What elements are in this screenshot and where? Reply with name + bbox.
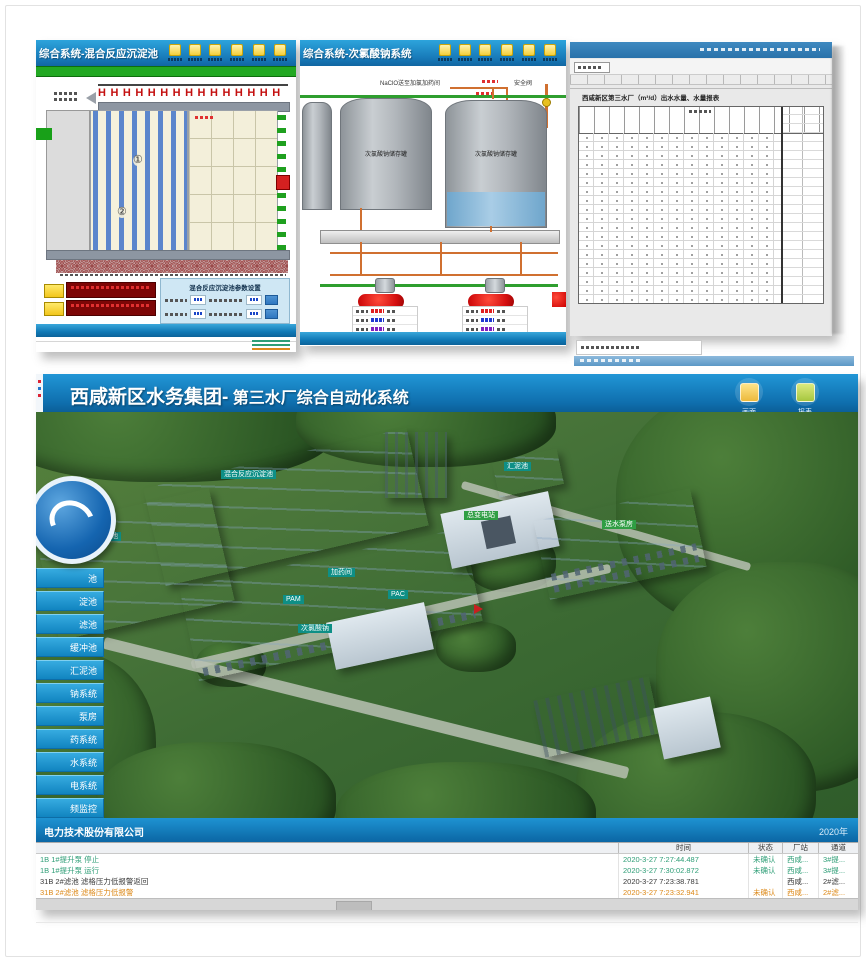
substation-door <box>481 516 516 550</box>
bottom-channel-bar <box>46 250 290 260</box>
nav-button-caption <box>500 58 514 61</box>
report-summary-columns <box>781 107 823 303</box>
nav-button-caption <box>458 58 472 61</box>
event-channel: 2#滤... <box>818 876 858 887</box>
nav-button-icon <box>209 44 221 56</box>
sidebar-item-label: 汇泥池 <box>70 664 97 677</box>
report-shadow <box>832 46 845 334</box>
pipe-vertical <box>440 242 442 276</box>
column-ruler <box>570 75 832 85</box>
horizontal-scrollbar[interactable] <box>36 898 858 910</box>
sidebar-item-label: 缓冲池 <box>70 641 97 654</box>
nav-button-caption <box>522 58 536 61</box>
event-row[interactable]: 31B 2#滤池 滤格压力低报警 2020-3-27 7:23:32.941 未… <box>36 887 858 898</box>
screen-a-titlebar: 综合系统-混合反应沉淀池 <box>36 40 296 66</box>
nav-button-caption <box>208 58 222 61</box>
main-titlebar: 西咸新区水务集团- 第三水厂综合自动化系统 画面 报表 <box>36 374 858 412</box>
param-label-greeked <box>165 313 187 316</box>
param-label-greeked <box>209 313 243 316</box>
nav-button-icon <box>544 44 556 56</box>
flag-icon <box>474 604 488 614</box>
sidebar-item-9[interactable]: 水系统 <box>36 752 104 772</box>
sidebar-item-7[interactable]: 泵房 <box>36 706 104 726</box>
sidebar-item-8[interactable]: 药系统 <box>36 729 104 749</box>
green-gate-indicator <box>36 128 52 140</box>
screen-a-title: 综合系统-混合反应沉淀池 <box>39 46 158 61</box>
report-title: 西咸新区第三水厂（m³/d）出水水量、水量报表 <box>582 92 719 102</box>
event-message: 31B 2#滤池 滤格压力低报警 <box>36 887 618 898</box>
dosing-pump-3-partial <box>552 292 566 307</box>
event-col-channel: 通道 <box>818 843 858 853</box>
param-value-field[interactable] <box>190 309 206 319</box>
param-set-button[interactable] <box>265 309 278 319</box>
building-label-mixing-basin: 混合反应沉淀池 <box>221 470 276 479</box>
event-status: 未确认 <box>748 865 782 876</box>
sidebar-item-11[interactable]: 频监控 <box>36 798 104 818</box>
event-col-station: 厂站 <box>782 843 818 853</box>
nav-screen-button[interactable] <box>476 44 494 64</box>
settling-cell-grid <box>188 110 278 252</box>
event-col-time: 时间 <box>618 843 748 853</box>
footer-company: 电力技术股份有限公司 <box>44 824 144 839</box>
tank2-label: 次氯酸钠储存罐 <box>446 149 546 158</box>
event-line-greeked <box>252 340 290 342</box>
composite-screenshot: 综合系统-混合反应沉淀池 HHHHHHHHHHHHHHH ① ② <box>0 0 866 962</box>
pump-motor <box>485 278 505 293</box>
screen-b-title: 综合系统-次氯酸钠系统 <box>303 46 412 61</box>
left-tank <box>46 110 90 252</box>
alarm-cell <box>276 175 290 190</box>
event-station: 西咸... <box>782 854 818 865</box>
sidebar-item-label: 药系统 <box>70 733 97 746</box>
pump2-readouts <box>462 306 528 334</box>
event-time: 2020-3-27 7:23:32.941 <box>618 887 748 898</box>
pipe-vertical <box>360 242 362 276</box>
sidebar-item-4[interactable]: 缓冲池 <box>36 637 104 657</box>
green-dosing-line <box>320 284 558 287</box>
drain-valve-row[interactable] <box>56 260 288 273</box>
mode-button-2[interactable] <box>44 302 64 316</box>
sidebar-item-label: 电系统 <box>70 779 97 792</box>
event-row[interactable]: 1B 1#提升泵 停止 2020-3-27 7:27:44.487 未确认 西咸… <box>36 854 858 865</box>
button-ring <box>735 378 763 406</box>
nav-button-caption <box>230 58 244 61</box>
screen-mixing-sedimentation: 综合系统-混合反应沉淀池 HHHHHHHHHHHHHHH ① ② <box>36 40 296 352</box>
param-value-field[interactable] <box>246 309 262 319</box>
report-toolbar <box>570 59 832 75</box>
main-title-company: 西咸新区水务集团- <box>70 387 228 408</box>
screen-report: 西咸新区第三水厂（m³/d）出水水量、水量报表 <box>570 42 832 336</box>
event-channel: 3#提... <box>818 854 858 865</box>
screen-b-titlebar: 综合系统-次氯酸钠系统 <box>300 40 566 66</box>
page-bottom-line <box>36 922 858 923</box>
report-table-body <box>579 133 783 303</box>
pipe-horizontal <box>330 252 558 254</box>
safety-valve-label: 安全阀 <box>514 78 532 87</box>
sidebar-item-label: 池 <box>88 572 97 585</box>
sidebar-item-2[interactable]: 淀池 <box>36 591 104 611</box>
param-label-greeked <box>209 299 243 302</box>
sidebar-item-label: 淀池 <box>79 595 97 608</box>
sidebar-item-label: 钠系统 <box>70 687 97 700</box>
event-list-header: 时间 状态 厂站 通道 <box>36 843 858 854</box>
nav-screen-button[interactable] <box>250 44 268 64</box>
building-label-pump-house: 送水泵房 <box>602 520 636 529</box>
nav-button-icon <box>459 44 471 56</box>
storage-tank-1: 次氯酸钠储存罐 <box>340 98 432 210</box>
report-bottom-bar <box>574 356 854 366</box>
event-list: 时间 状态 厂站 通道 1B 1#提升泵 停止 2020-3-27 7:27:4… <box>36 842 858 899</box>
event-station: 西咸... <box>782 876 818 887</box>
alarm-banner-1 <box>66 282 156 298</box>
report-table <box>578 106 824 304</box>
button-ring <box>791 378 819 406</box>
event-message: 31B 2#滤池 滤格压力低报警返回 <box>36 876 618 887</box>
tank2-liquid-level <box>447 192 545 226</box>
nav-button-icon <box>253 44 265 56</box>
green-divider-band <box>36 66 296 77</box>
event-time: 2020-3-27 7:23:38.781 <box>618 876 748 887</box>
screen-a-taskbar[interactable] <box>36 324 296 337</box>
pipe-vertical <box>520 242 522 276</box>
forest-blob <box>336 762 596 818</box>
nav-button-icon <box>439 44 451 56</box>
inlet-label-greeked <box>54 98 78 101</box>
report-footer-box <box>576 340 702 355</box>
titlebar-edge-strip <box>36 374 43 412</box>
basin-number-2: ② <box>117 207 127 218</box>
report-menu-greeked <box>700 48 820 51</box>
tank1-label: 次氯酸钠储存罐 <box>341 149 431 158</box>
parameter-panel: 混合反应沉淀池参数设置 <box>160 278 290 324</box>
building-label-dosing-room: 加药间 <box>328 568 355 577</box>
building-label-pam: PAM <box>283 595 304 604</box>
nav-button-caption <box>252 58 266 61</box>
nav-screen-button[interactable] <box>186 44 204 64</box>
green-supply-line <box>300 95 566 98</box>
event-status: 未确认 <box>748 854 782 865</box>
nav-button-caption <box>273 58 287 61</box>
event-message: 1B 1#提升泵 运行 <box>36 865 618 876</box>
nav-button-icon <box>501 44 513 56</box>
param-set-button[interactable] <box>265 295 278 305</box>
event-station: 西咸... <box>782 865 818 876</box>
safety-valve-icon <box>542 98 551 107</box>
mode-button-1[interactable] <box>44 284 64 298</box>
pipe-vertical <box>492 87 494 99</box>
screen-plant-overview: 西咸新区水务集团- 第三水厂综合自动化系统 画面 报表 <box>36 374 858 910</box>
alarm-text-greeked <box>71 286 151 289</box>
nav-screen-button[interactable] <box>436 44 454 64</box>
nav-screen-button[interactable] <box>206 44 224 64</box>
sidebar-item-3[interactable]: 滤池 <box>36 614 104 634</box>
pipe-horizontal <box>450 87 508 89</box>
pipe-vertical <box>360 208 362 230</box>
event-station: 西咸... <box>782 887 818 898</box>
sidebar-item-label: 水系统 <box>70 756 97 769</box>
main-title-system: 第三水厂综合自动化系统 <box>228 390 408 407</box>
pump-motor <box>375 278 395 293</box>
tank-partial <box>302 102 332 210</box>
nav-screen-button[interactable] <box>271 44 289 64</box>
event-message: 1B 1#提升泵 停止 <box>36 854 618 865</box>
sidebar-item-label: 频监控 <box>70 802 97 815</box>
event-row[interactable]: 1B 1#提升泵 运行 2020-3-27 7:30:02.872 未确认 西咸… <box>36 865 858 876</box>
nav-button-icon <box>274 44 286 56</box>
nav-screen-button[interactable] <box>456 44 474 64</box>
sedimentation-basin: ① ② <box>90 110 188 252</box>
nav-button-caption <box>168 58 182 61</box>
nav-screen-button[interactable] <box>520 44 538 64</box>
nav-screen-button[interactable] <box>228 44 246 64</box>
scrollbar-thumb[interactable] <box>336 901 372 910</box>
report-titlebar <box>570 42 832 58</box>
event-channel: 3#提... <box>818 865 858 876</box>
pipe-vertical <box>490 226 492 232</box>
event-time: 2020-3-27 7:27:44.487 <box>618 854 748 865</box>
event-channel: 2#滤... <box>818 887 858 898</box>
sidebar-item-1[interactable]: 池 <box>36 568 104 588</box>
nav-button-caption <box>188 58 202 61</box>
param-label-greeked <box>165 299 187 302</box>
footer-text-greeked <box>581 346 641 349</box>
nav-button-icon <box>479 44 491 56</box>
storage-tank-2: 次氯酸钠储存罐 <box>445 100 547 228</box>
sidebar-item-label: 滤池 <box>79 618 97 631</box>
nav-screen-button[interactable] <box>166 44 184 64</box>
event-col-status: 状态 <box>748 843 782 853</box>
alarm-text-greeked <box>71 304 151 307</box>
nav-screen-button[interactable] <box>541 44 559 64</box>
nav-button-icon <box>189 44 201 56</box>
event-line-greeked <box>252 344 290 346</box>
parameter-panel-title: 混合反应沉淀池参数设置 <box>161 282 289 292</box>
flow-value-greeked <box>482 80 498 83</box>
building-label-hypochlorite: 次氯酸钠 <box>298 624 332 633</box>
pipe-destination-label: NaClO送至加氯加药间 <box>380 78 440 87</box>
bar-text-greeked <box>580 359 640 362</box>
screen-hypochlorite-system: 综合系统-次氯酸钠系统 NaClO送至加氯加药间 安全阀 次氯酸钠储存罐 次氯酸… <box>300 40 566 346</box>
param-value-field[interactable] <box>246 295 262 305</box>
zoom-dropdown[interactable] <box>574 62 610 73</box>
event-line-greeked <box>252 348 290 350</box>
tree-cluster <box>436 622 516 672</box>
pump1-readouts <box>352 306 418 334</box>
event-time: 2020-3-27 7:30:02.872 <box>618 865 748 876</box>
report-icon <box>796 383 815 402</box>
building-label-pac: PAC <box>388 590 408 599</box>
event-row[interactable]: 31B 2#滤池 滤格压力低报警返回 2020-3-27 7:23:38.781… <box>36 876 858 887</box>
nav-screen-button[interactable] <box>498 44 516 64</box>
valve-captions-greeked <box>60 274 286 276</box>
nav-button-caption <box>478 58 492 61</box>
divider <box>570 88 832 89</box>
alarm-banner-2 <box>66 300 156 316</box>
plant-3d-view: 混合反应沉淀池 砂滤池 加药间 PAM PAC 次氯酸钠 汇泥池 总变电站 送水… <box>36 412 858 818</box>
nav-button-icon <box>169 44 181 56</box>
nav-button-icon <box>231 44 243 56</box>
sidebar-item-10[interactable]: 电系统 <box>36 775 104 795</box>
pipe-vertical <box>506 87 508 101</box>
merged-header-greeked <box>689 110 711 113</box>
event-status <box>748 876 782 887</box>
level-value-greeked <box>195 116 215 119</box>
basin-number-1: ① <box>133 155 143 166</box>
building-label-substation: 总变电站 <box>464 511 498 520</box>
sidebar-item-5[interactable]: 汇泥池 <box>36 660 104 680</box>
event-col-message <box>36 843 618 853</box>
main-title: 西咸新区水务集团- 第三水厂综合自动化系统 <box>70 382 409 409</box>
nav-button-caption <box>543 58 557 61</box>
screens-icon <box>740 383 759 402</box>
inlet-label-greeked <box>54 92 78 95</box>
footer-date: 2020年 <box>819 825 848 838</box>
building-label-sludge-pool: 汇泥池 <box>504 462 531 471</box>
nav-button-icon <box>523 44 535 56</box>
nav-button-caption <box>438 58 452 61</box>
event-status: 未确认 <box>748 887 782 898</box>
flow-arrow-icon <box>80 92 96 104</box>
mixer-row: HHHHHHHHHHHHHHH <box>98 84 288 103</box>
param-value-field[interactable] <box>190 295 206 305</box>
footer-bar: 电力技术股份有限公司 2020年 <box>36 818 858 842</box>
building-office-tower <box>385 432 447 498</box>
sidebar-item-6[interactable]: 钠系统 <box>36 683 104 703</box>
sidebar-item-label: 泵房 <box>79 710 97 723</box>
pipe-horizontal <box>330 274 558 276</box>
screen-b-taskbar[interactable] <box>300 332 566 345</box>
